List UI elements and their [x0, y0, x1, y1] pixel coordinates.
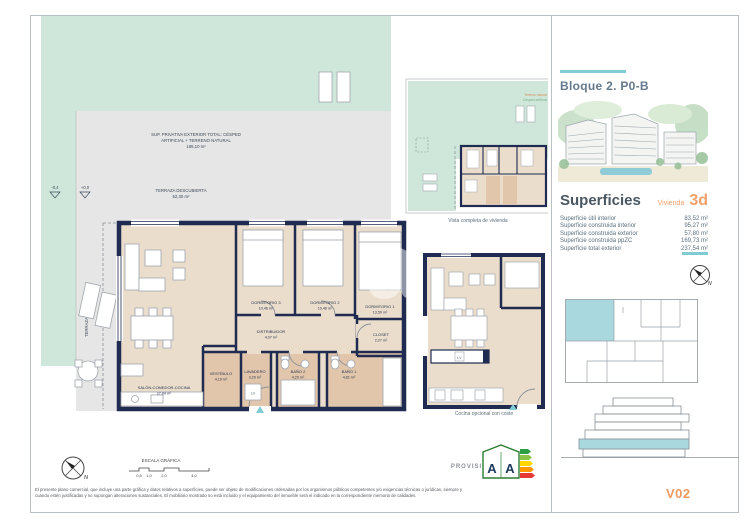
room-area: 4,19 m² [215, 378, 228, 382]
inset-kitchen-plan: LV Cocina opcional con coste [422, 252, 543, 417]
plan-sheet-frame: SUP. PRIVATIVA EXTERIOR TOTAL: CÉSPED AR… [30, 15, 739, 513]
title-block-divider [551, 16, 552, 512]
legend-cesped-artificial: Césped artificial [523, 98, 547, 102]
disclaimer-line2: cuando estén justificadas y no supongan … [35, 493, 416, 498]
terrace-label-text: TERRAZA DESCUBIERTA [155, 188, 206, 193]
apartment: LV DORMITORIO 3 10,46 m² DORMITORIO 2 10… [116, 213, 420, 413]
building-render-image [558, 98, 708, 186]
block-title: Bloque 2. P0-B [560, 79, 649, 93]
room-area: 4,81 m² [343, 376, 356, 380]
room-label: BAÑO 2 [291, 369, 306, 374]
room-area: 27,84 m² [157, 392, 172, 396]
floor-key-plan [565, 299, 698, 383]
room-area: 2,27 m² [375, 339, 388, 343]
room-label: VESTÍBULO [210, 371, 232, 376]
unit-highlight [566, 300, 614, 341]
table-row: Superficie construida exterior 57,80 m² [560, 231, 708, 238]
room-area: 4,07 m² [265, 336, 278, 340]
scale-bar: ESCALA GRÁFICA 0,5 1,0 2,0 4,0 [129, 457, 209, 478]
disclaimer-line1: El presente plano comercial, que incluye… [35, 487, 463, 492]
energy-letter-right: A [505, 461, 515, 476]
scale-tick: 4,0 [191, 473, 197, 478]
lawn-area: 185,10 m² [186, 144, 206, 149]
row-label: Superficie construida exterior [560, 231, 638, 238]
superficies-header: Superficies Vivienda 3d [560, 192, 708, 210]
table-row: Superficie construida interior 95,27 m² [560, 223, 708, 230]
compass-north-label: N [84, 475, 88, 481]
scale-tick: 2,0 [161, 473, 167, 478]
kitchen-caption: Cocina opcional con coste [455, 411, 514, 417]
legend-terreno-natural: Terreno natural [524, 93, 547, 97]
terrace-area: 52,30 m² [173, 194, 191, 199]
table-row: Superficie construida ppZC 169,73 m² [560, 238, 708, 245]
floor-highlight [579, 439, 689, 449]
room-area: 10,46 m² [259, 307, 274, 311]
scale-tick: 0,5 [136, 473, 142, 478]
level-marker-outer: -0,4 [51, 185, 59, 190]
vivienda-label: Vivienda [658, 200, 685, 207]
row-value: 95,27 m² [684, 223, 708, 230]
row-label: Superficie total exterior [560, 246, 621, 253]
building-elevation-diagram [561, 396, 739, 466]
row-label: Superficie útil interior [560, 216, 616, 223]
room-area: 3,20 m² [249, 376, 262, 380]
row-value: 83,52 m² [684, 216, 708, 223]
room-label: DORMITORIO 2 [310, 300, 340, 305]
overview-caption: Vista completa de vivienda [448, 218, 508, 224]
inset-overview-plan: Terreno natural Césped artificial Vista … [406, 79, 548, 224]
brand-watermark: a [366, 213, 420, 319]
floor-plan-drawing: SUP. PRIVATIVA EXTERIOR TOTAL: CÉSPED AR… [31, 16, 548, 513]
version-label: V02 [666, 486, 691, 501]
panel-north-compass: N [687, 262, 715, 290]
compass-north-label: N [708, 281, 712, 287]
energy-arrows [520, 449, 535, 478]
overview-legend: Terreno natural Césped artificial [523, 93, 547, 102]
north-compass: N [62, 457, 88, 481]
superficies-table: Superficie útil interior 83,52 m² Superf… [560, 216, 708, 253]
row-value: 57,80 m² [684, 231, 708, 238]
vivienda-type: 3d [689, 192, 708, 210]
room-label: LAVADERO [244, 369, 265, 374]
room-label: CLOSET [373, 332, 390, 337]
room-area: 4,29 m² [292, 376, 305, 380]
superficies-title: Superficies [560, 192, 641, 209]
row-value: 169,73 m² [681, 238, 708, 245]
room-label: DORMITORIO 3 [251, 300, 281, 305]
room-label: SALÓN-COMEDOR-COCINA [138, 385, 191, 390]
panel-top-rule [560, 70, 626, 73]
appliance-label: LV [251, 392, 256, 396]
level-marker-inner: +0,0 [81, 185, 90, 190]
row-label: Superficie construida interior [560, 223, 636, 230]
energy-certificate-icon: A A [483, 445, 535, 478]
energy-letter-left: A [487, 461, 497, 476]
scale-bar-title: ESCALA GRÁFICA [142, 457, 181, 463]
room-area: 10,46 m² [318, 307, 333, 311]
room-label: DISTRIBUIDOR [257, 329, 286, 334]
scale-tick: 1,0 [146, 473, 152, 478]
lawn-label-line1: SUP. PRIVATIVA EXTERIOR TOTAL: CÉSPED [151, 132, 241, 137]
kitchen-appliance-label: LV [457, 356, 462, 360]
panel-mid-rule [682, 252, 708, 255]
row-label: Superficie construida ppZC [560, 238, 632, 245]
table-row: Superficie útil interior 83,52 m² [560, 216, 708, 223]
lawn-label-line2: ARTIFICIAL + TERRENO NATURAL [161, 138, 231, 143]
disclaimer: El presente plano comercial, que incluye… [35, 487, 463, 498]
room-label: BAÑO 1 [342, 369, 357, 374]
